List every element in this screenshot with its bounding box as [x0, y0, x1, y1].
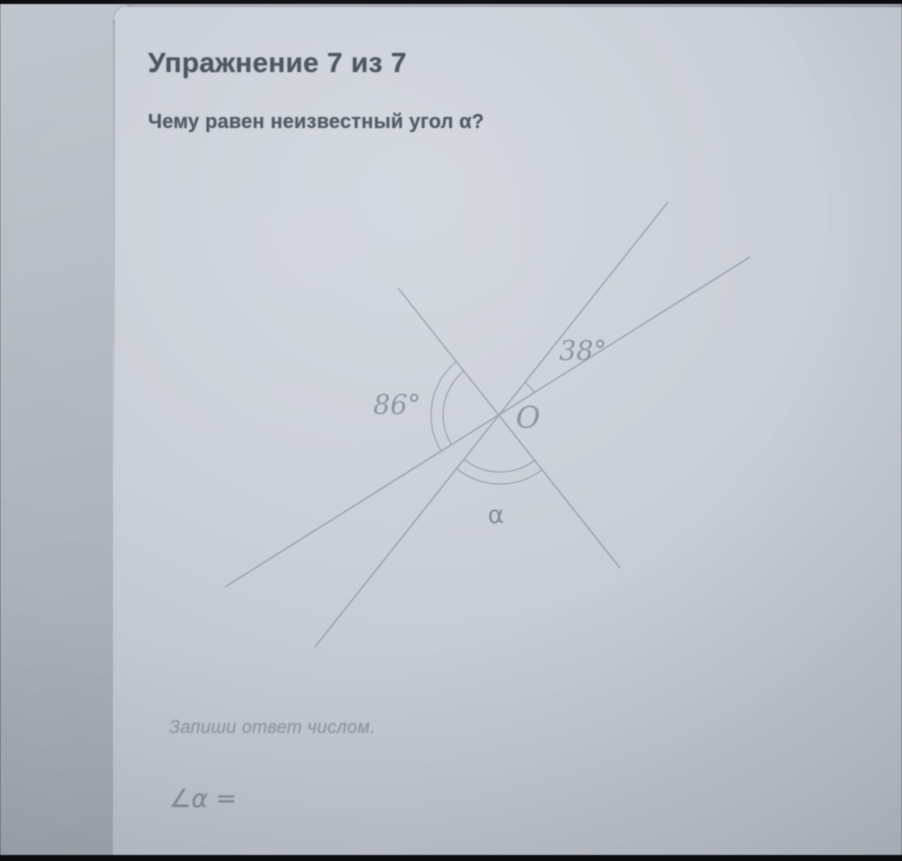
angle-38-label: 38°	[559, 336, 607, 367]
angle-alpha-label: α	[488, 500, 504, 529]
answer-row: ∠α =	[169, 780, 405, 816]
angle-86-arc	[443, 371, 464, 446]
screen-photo: Упражнение 7 из 7 Чему равен неизвестный…	[0, 0, 902, 861]
answer-instruction: Запиши ответ числом.	[169, 717, 375, 738]
point-O-label: O	[516, 401, 541, 436]
angle-alpha-arc	[457, 469, 543, 484]
angle-86-label: 86°	[373, 390, 421, 421]
geometry-diagram: 38°86°Oα	[0, 0, 902, 861]
diagram-line-CF	[398, 288, 620, 568]
angle-38-arc	[525, 383, 534, 393]
angle-alpha-arc	[465, 460, 536, 472]
answer-input[interactable]	[251, 780, 405, 816]
diagram-line-BD	[225, 257, 750, 587]
diagram-line-AE	[315, 202, 668, 647]
answer-prompt: ∠α =	[169, 784, 237, 813]
